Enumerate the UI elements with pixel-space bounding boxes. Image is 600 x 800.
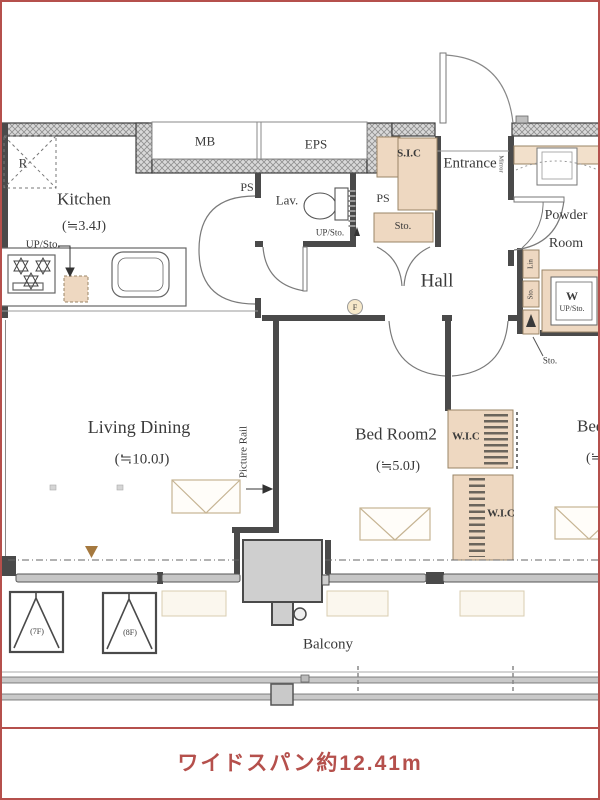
label-f-mark: F [353, 304, 357, 312]
label-sto-linen: Sto. [528, 288, 535, 299]
hatch-symbol-br2 [360, 508, 430, 540]
label-sto-pointer: Sto. [543, 357, 557, 366]
room-label-powder-2: Room [549, 237, 583, 251]
room-label-kitchen: Kitchen [57, 191, 111, 208]
hatch-symbol-br [555, 507, 600, 539]
label-up-sto-kitchen: UP/Sto. [26, 240, 61, 251]
label-picture-rail: Picture Rail [239, 426, 250, 478]
label-wic-lower: W.I.C [487, 509, 515, 520]
entrance-door [437, 53, 513, 151]
room-size-kitchen: (≒3.4J) [62, 220, 106, 234]
floor-plan-page: Kitchen (≒3.4J) R MB EPS PS PS Lav. UP/S… [0, 0, 600, 800]
evacuation-hatch-7f [10, 591, 63, 652]
label-sto-hall: Sto. [395, 222, 412, 233]
label-w-up-sto: UP/Sto. [559, 305, 584, 313]
label-ps-left: PS [240, 181, 253, 193]
orientation-triangle [85, 546, 98, 558]
closets [374, 137, 600, 560]
structural-column [243, 540, 329, 625]
room-label-lav: Lav. [276, 194, 299, 207]
label-r: R [19, 157, 28, 170]
room-size-bed-room2: (≒5.0J) [376, 460, 420, 474]
room-label-living-dining: Living Dining [88, 418, 191, 436]
label-hatch-7f: (7F) [30, 628, 44, 636]
meter-box-recess [152, 122, 367, 159]
evacuation-hatch-8f [103, 592, 156, 653]
room-size-living-dining: (≒10.0J) [115, 453, 170, 468]
label-mb: MB [195, 135, 215, 148]
label-up-sto-lav: UP/Sto. [316, 229, 344, 238]
kitchen-counter [0, 248, 186, 306]
room-label-balcony: Balcony [303, 638, 353, 653]
room-size-bed-room: (≒ [586, 452, 600, 466]
dimension-note: ワイドスパン約12.41m [177, 747, 422, 777]
outlet-marks [50, 485, 123, 490]
west-window [2, 320, 6, 556]
label-wic-upper: W.I.C [452, 432, 480, 443]
railing-post [271, 684, 293, 705]
room-label-bed-room: Bed Room [577, 418, 600, 435]
label-eps: EPS [305, 138, 327, 151]
toilet [304, 188, 348, 220]
room-label-hall: Hall [421, 272, 454, 291]
label-ps-right: PS [376, 192, 389, 204]
wall-notch [516, 116, 528, 123]
balcony-railing [0, 666, 600, 705]
lav-door-leaf [303, 247, 307, 291]
label-mirror: Mirror [497, 155, 504, 172]
room-label-powder-1: Powder [545, 209, 588, 223]
powder-door-leaf [514, 197, 564, 202]
room-label-bed-room2: Bed Room2 [355, 426, 437, 443]
refrigerator-space [4, 136, 56, 188]
ac-pads [162, 591, 524, 616]
label-sic: S.I.C [397, 149, 421, 160]
hatch-symbol-ld [172, 480, 240, 513]
room-label-entrance: Entrance [443, 157, 496, 172]
dimension-line [0, 727, 600, 729]
powder-vanity [514, 146, 600, 185]
floor-plan-drawing [0, 0, 600, 800]
under-counter-storage [64, 276, 88, 302]
label-lin: Lin [528, 259, 535, 269]
picture-rail-arrow [246, 485, 272, 493]
sto-leader-line [533, 337, 543, 356]
label-hatch-8f: (8F) [123, 629, 137, 637]
label-w: W [566, 290, 578, 302]
